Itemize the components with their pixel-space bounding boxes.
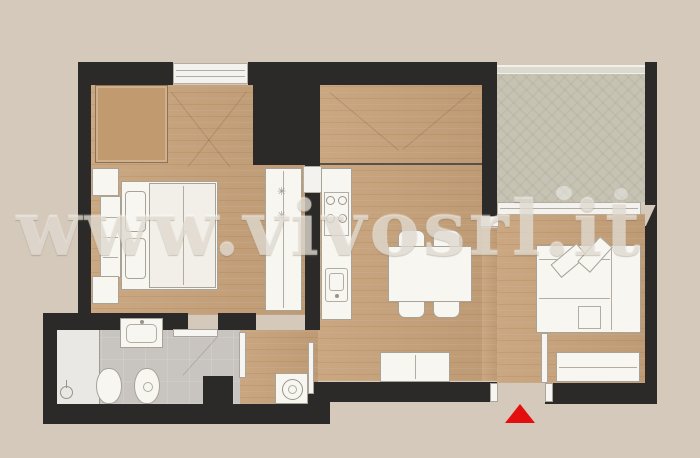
bidet <box>134 368 160 404</box>
bathroom-second-door-leaf <box>239 332 246 378</box>
wall-hall-bottom <box>307 382 497 402</box>
entrance-door-leaf <box>541 333 548 383</box>
towel-stand-pole <box>66 380 67 388</box>
wall-terrace-corner <box>645 202 657 228</box>
kitchen-sink <box>325 268 348 302</box>
entrance-arrow-icon <box>505 404 535 423</box>
wall-bathroom-jog <box>203 376 233 424</box>
wall-right-upper <box>645 62 657 205</box>
hall-cabinet <box>380 352 450 382</box>
wardrobe <box>95 85 168 163</box>
sideboard <box>556 352 640 382</box>
bathroom-door-leaf <box>173 329 218 337</box>
nightstand <box>92 276 119 304</box>
terrace-floor <box>497 74 645 202</box>
terrace-railing <box>497 65 645 74</box>
watermark: www.vivosrl.it <box>16 184 643 273</box>
wall-top-left <box>78 62 173 85</box>
wall-bedroom-bottom <box>43 313 188 330</box>
wall-right-lower <box>645 226 657 393</box>
washing-machine <box>275 373 308 404</box>
pouf <box>578 306 601 329</box>
toilet <box>96 368 122 404</box>
floor-plan: ✳ ✳ <box>0 0 700 458</box>
entrance-door-frame-left <box>490 383 498 402</box>
hallway-door-leaf <box>308 342 314 394</box>
washbasin <box>120 318 163 348</box>
entrance-door-frame-right <box>545 383 553 402</box>
wall-bedroom-kitchen-upper <box>305 62 320 166</box>
wall-bedroom-bottom-stub <box>218 313 256 330</box>
ceiling-beam-line <box>320 163 482 165</box>
wall-living-bottom <box>545 383 657 404</box>
wall-pillar-bedroom-kitchen <box>253 62 305 165</box>
bedroom-window <box>173 63 248 84</box>
